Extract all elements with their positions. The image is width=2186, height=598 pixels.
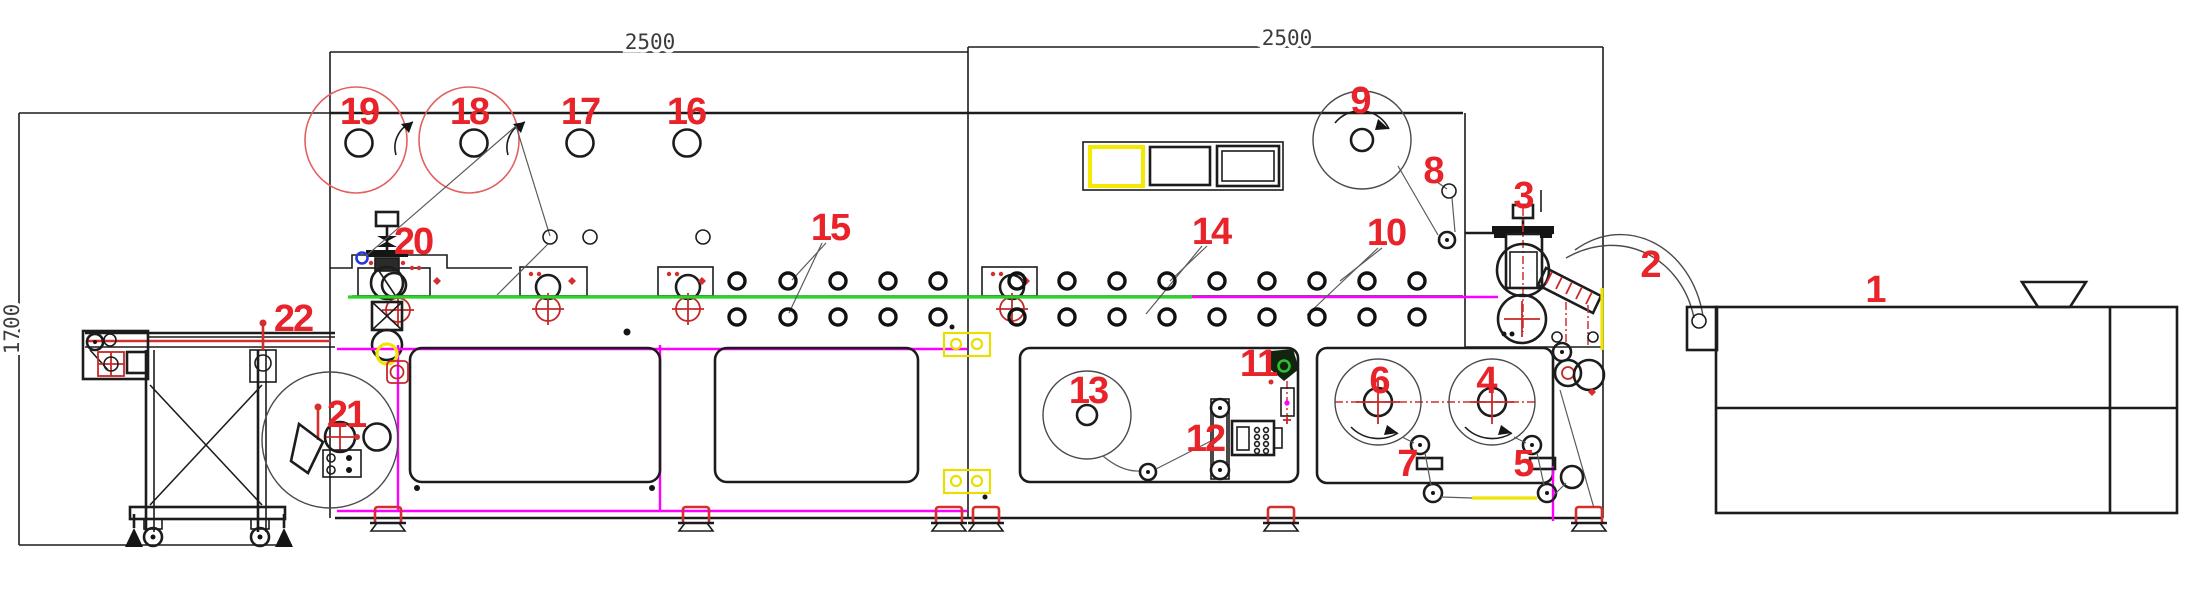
web-guide-ring [1259,273,1275,289]
idler-roller [583,230,597,244]
web-guide-ring [1359,273,1375,289]
web-guide-ring [930,309,946,325]
callout-21: 21 [327,394,367,436]
drawing-segment [93,340,97,344]
dimension-label: 1700 [0,304,24,355]
callout-18: 18 [450,91,489,133]
drawing-segment [1540,232,1552,238]
web-guide-ring [1059,273,1075,289]
web-guide-ring [1209,309,1225,325]
blue-sensor [357,253,368,264]
callout-17: 17 [561,91,600,133]
transfer-chute-2 [1566,245,1694,318]
red-diamond [568,277,576,285]
web-guide-ring [830,309,846,325]
callout-5: 5 [1513,443,1534,485]
drawing-segment [1588,332,1598,342]
unwind-shaft-18 [461,130,488,157]
machine-foot [973,507,999,522]
drawing-segment [950,325,955,330]
web-thread-line [366,126,516,256]
guide-tab-5 [1530,458,1555,469]
drawing-segment [529,272,533,276]
chute-end-roller [1692,314,1706,328]
drawing-segment [258,535,263,540]
drawing-segment [1255,435,1260,440]
callout-15: 15 [811,207,851,249]
guide-tab-7 [1417,458,1442,469]
drawing-segment [1566,282,1572,294]
drawing-segment [537,272,541,276]
control-panel [1083,142,1283,190]
drawing-segment [972,339,982,349]
callout-14: 14 [1192,211,1232,253]
web-thread-line [1452,198,1455,232]
web-guide-ring [729,309,745,325]
drawing-segment [1502,332,1507,337]
guide-roller [1574,360,1604,390]
drawing-segment [1494,232,1506,238]
drawing-segment [1218,468,1222,472]
drawing-segment [346,467,352,473]
drawing-segment [983,495,988,500]
callout-22: 22 [274,298,313,340]
drawing-segment [327,466,335,474]
callout-7: 7 [1397,443,1417,485]
drawing-segment [1255,442,1260,447]
web-guide-ring [1059,309,1075,325]
drawing-segment [1264,435,1269,440]
drawing-segment [951,476,961,486]
guide-bracket [520,267,587,296]
web-thread-line [1103,456,1140,471]
drawing-segment [1556,277,1562,289]
callout-4: 4 [1476,360,1497,402]
drawing-segment [649,485,655,491]
drawing-segment [1284,400,1289,405]
callout-2: 2 [1640,244,1660,286]
unwind-shaft-19 [346,130,373,157]
web-guide-ring [729,273,745,289]
drawing-segment [1562,367,1574,379]
drawing-segment [1431,491,1435,495]
pin-22-head [260,320,267,327]
drawing-segment [667,272,671,276]
web-guide-ring [1409,309,1425,325]
callout-11: 11 [1240,343,1278,385]
callout-8: 8 [1423,150,1443,192]
web-guide-ring [830,273,846,289]
red-diamond [433,277,441,285]
web-guide-ring [1159,309,1175,325]
leveling-foot [275,528,293,547]
web-guide-ring [930,273,946,289]
cad-drawing: 1234567891011121314151617181920212225002… [0,0,2186,598]
callout-19: 19 [340,91,379,133]
web-thread-line [516,126,550,236]
drawing-segment [1552,332,1562,342]
drawing-segment [417,266,421,270]
leveling-foot [125,528,143,547]
web-guide-ring [1259,309,1275,325]
machine-foot [936,507,962,522]
dimension-label: 2500 [1262,26,1313,50]
idler-roller-8 [1442,184,1456,198]
callout-6: 6 [1369,360,1389,402]
web-guide-ring [1109,309,1125,325]
drawing-segment [151,535,156,540]
drawing-segment [1576,287,1582,299]
callout-3: 3 [1513,175,1533,217]
machine-foot [1268,507,1294,522]
drawing-segment [991,272,995,276]
web-thread-line [497,244,548,295]
drawing-segment [1510,332,1515,337]
callout-1: 1 [1865,269,1886,311]
idler-roller [696,230,710,244]
web-guide-ring [780,273,796,289]
callout-10: 10 [1367,212,1406,254]
control-panel-box-inner [1222,151,1274,181]
drawing-segment [1560,350,1564,354]
machine1-body [1716,307,2177,513]
machine1-hopper [2022,282,2086,307]
web-guide-ring [880,309,896,325]
callout-13: 13 [1069,370,1108,412]
machine-foot [1576,507,1602,522]
drawing-segment [1264,442,1269,447]
drawing-segment [1418,443,1422,447]
drawing-segment [1545,491,1549,495]
drawing-segment [675,272,679,276]
machine-layout-diagram: 1234567891011121314151617181920212225002… [0,0,2186,598]
machine-foot [683,507,709,522]
web-guide-ring [1309,273,1325,289]
drawing-segment [1264,449,1269,454]
drawing-segment [410,266,414,270]
callout-20: 20 [394,221,433,263]
web-guide-ring [1109,273,1125,289]
drawing-segment [1586,292,1592,304]
web-guide-ring [880,273,896,289]
unwind-shaft-16 [674,130,701,157]
pin-21-head [315,404,322,411]
drawing-segment [1255,428,1260,433]
drawing-segment [1264,428,1269,433]
access-panel [410,348,660,482]
drawing-segment [1146,470,1150,474]
web-thread-line [1560,390,1594,508]
drawing-segment [1218,406,1222,410]
web-guide-ring [1409,273,1425,289]
dimension-label: 2500 [625,30,676,54]
drawing-segment [999,272,1003,276]
drawing-segment [1237,427,1249,450]
drawing-segment [414,485,420,491]
drawing-segment [369,261,373,265]
control-panel-yellow-box [1090,147,1143,186]
web-guide-ring [780,309,796,325]
drawing-segment [624,329,631,336]
drawing-segment [346,455,352,461]
unwind-shaft-17 [567,130,594,157]
access-panel [715,348,918,482]
callout-16: 16 [667,91,706,133]
head-cover [127,352,147,373]
drawing-segment [951,339,961,349]
drawing-segment [972,476,982,486]
web-guide-ring [1209,273,1225,289]
web-guide-ring [1359,309,1375,325]
drawing-segment [1445,238,1449,242]
drawing-segment [327,454,335,462]
idler-roller [543,230,557,244]
callout-9: 9 [1350,80,1370,122]
callout-12: 12 [1186,418,1225,460]
control-panel-box [1150,147,1210,185]
leader-10 [1307,248,1378,315]
laminate-roll-9-core [1351,129,1373,151]
drawing-segment [1441,497,1472,498]
control-panel-box [1217,146,1279,186]
cutter-roller [364,424,391,451]
web-guide-ring [1309,309,1325,325]
drawing-segment [1255,449,1260,454]
